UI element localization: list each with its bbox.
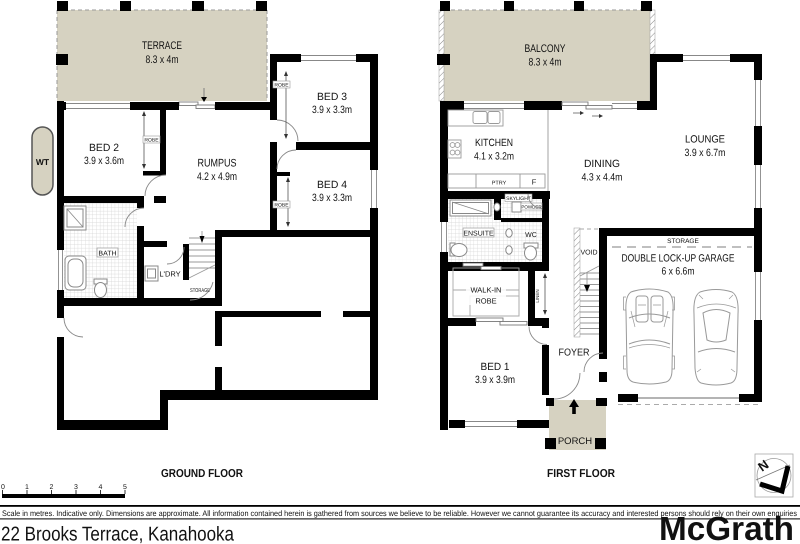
svg-text:VOID: VOID xyxy=(580,250,597,257)
svg-text:TERRACE: TERRACE xyxy=(142,40,182,52)
svg-text:3: 3 xyxy=(74,484,78,491)
svg-text:BALCONY: BALCONY xyxy=(525,43,567,55)
svg-text:FOYER: FOYER xyxy=(559,348,590,359)
svg-text:2: 2 xyxy=(50,484,54,491)
svg-text:ROBE: ROBE xyxy=(274,203,289,209)
svg-text:0: 0 xyxy=(1,484,5,491)
svg-text:BED 4: BED 4 xyxy=(317,179,347,191)
svg-text:LINEN: LINEN xyxy=(535,289,540,302)
svg-text:F: F xyxy=(532,178,537,187)
svg-text:3.9 x 3.6m: 3.9 x 3.6m xyxy=(84,155,124,167)
svg-text:RUMPUS: RUMPUS xyxy=(198,158,237,170)
svg-text:STORAGE: STORAGE xyxy=(190,288,210,294)
svg-text:1: 1 xyxy=(25,484,29,491)
svg-text:STORAGE: STORAGE xyxy=(667,238,699,245)
svg-text:L'DRY: L'DRY xyxy=(159,270,180,279)
svg-text:ROBE: ROBE xyxy=(475,297,496,306)
svg-text:3.9 x 6.7m: 3.9 x 6.7m xyxy=(685,147,726,159)
svg-text:4.1 x 3.2m: 4.1 x 3.2m xyxy=(474,151,514,163)
svg-text:GROUND FLOOR: GROUND FLOOR xyxy=(161,468,244,480)
svg-text:WC: WC xyxy=(525,232,537,239)
svg-text:6 x 6.6m: 6 x 6.6m xyxy=(662,266,695,278)
svg-text:3.9 x 3.3m: 3.9 x 3.3m xyxy=(312,104,352,116)
svg-text:5: 5 xyxy=(123,484,127,491)
svg-text:PTRY: PTRY xyxy=(492,181,507,187)
svg-text:KITCHEN: KITCHEN xyxy=(475,137,513,149)
svg-text:8.3 x 4m: 8.3 x 4m xyxy=(529,57,562,69)
svg-text:BED 3: BED 3 xyxy=(317,91,347,103)
svg-text:LOUNGE: LOUNGE xyxy=(685,134,725,146)
svg-text:BED 1: BED 1 xyxy=(481,361,510,373)
svg-text:DINING: DINING xyxy=(584,158,620,170)
svg-text:PORCH: PORCH xyxy=(558,436,592,447)
svg-text:ENSUITE: ENSUITE xyxy=(463,231,494,238)
svg-text:8.3 x 4m: 8.3 x 4m xyxy=(146,54,179,66)
svg-text:BED 2: BED 2 xyxy=(89,142,119,154)
svg-text:BATH: BATH xyxy=(98,251,116,258)
svg-text:3.9 x 3.3m: 3.9 x 3.3m xyxy=(312,192,352,204)
svg-text:4: 4 xyxy=(99,484,103,491)
svg-text:WT: WT xyxy=(36,157,50,167)
svg-text:ROBE: ROBE xyxy=(144,138,159,144)
svg-text:SKYLIGHT: SKYLIGHT xyxy=(506,196,531,202)
svg-text:POWDER: POWDER xyxy=(521,205,542,210)
svg-text:4.2 x 4.9m: 4.2 x 4.9m xyxy=(197,171,237,183)
svg-text:3.9 x 3.9m: 3.9 x 3.9m xyxy=(475,374,515,386)
svg-text:DOUBLE LOCK-UP GARAGE: DOUBLE LOCK-UP GARAGE xyxy=(622,253,735,265)
svg-text:4.3 x 4.4m: 4.3 x 4.4m xyxy=(582,172,623,184)
svg-text:22 Brooks Terrace, Kanahooka: 22 Brooks Terrace, Kanahooka xyxy=(1,524,235,544)
svg-text:FIRST FLOOR: FIRST FLOOR xyxy=(547,468,616,480)
svg-text:McGrath: McGrath xyxy=(659,511,794,544)
svg-text:ROBE: ROBE xyxy=(274,83,289,89)
svg-text:WALK-IN: WALK-IN xyxy=(471,286,502,295)
